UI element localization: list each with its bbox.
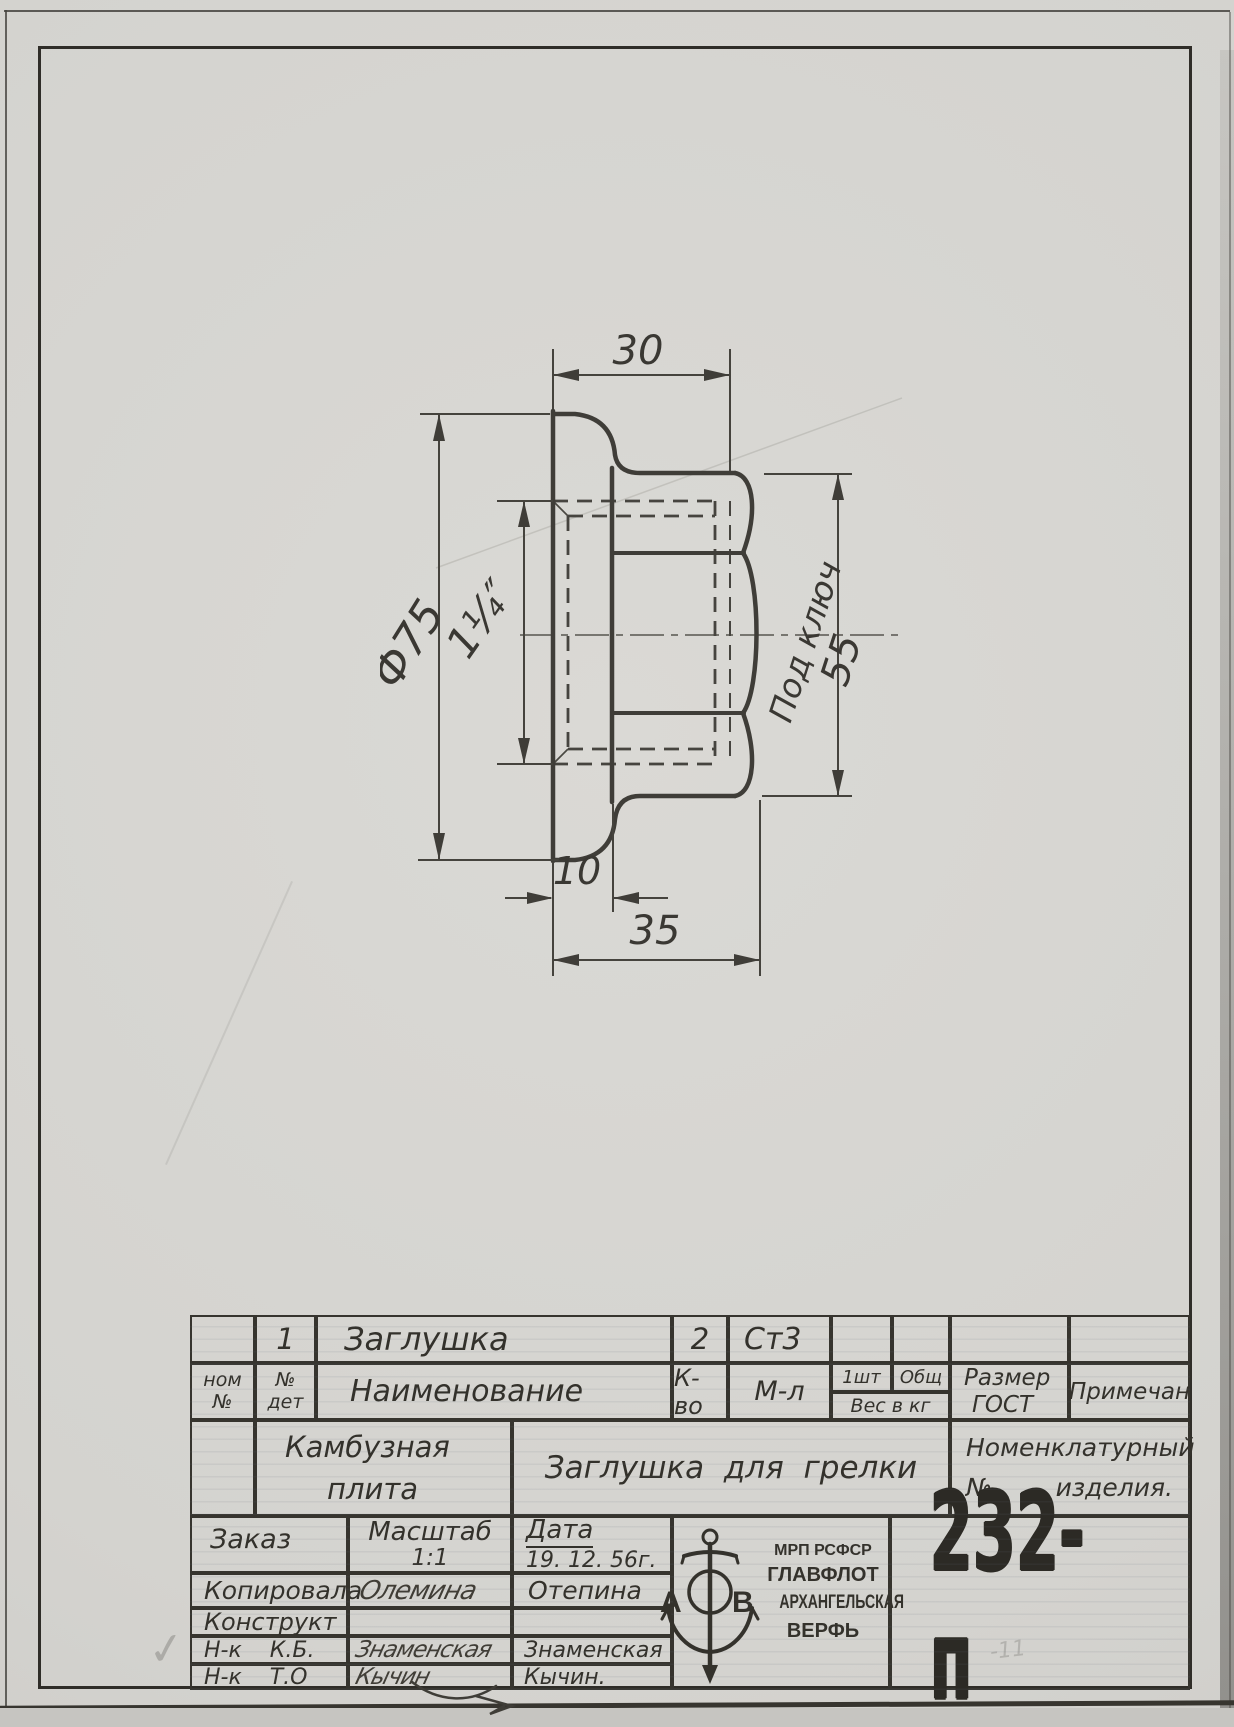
scale-cell: Масштаб 1:1 [348, 1516, 512, 1573]
chief-kb-signature-cell: Знаменская [348, 1636, 512, 1664]
copied-label-cell: Копировала [190, 1573, 348, 1608]
hex-corner-arc-top [735, 473, 752, 553]
stamp-org-line: МРП РСФСР [764, 1542, 882, 1560]
dim-label-flange-thickness: 10 [553, 849, 601, 893]
order-cell: Заказ [190, 1516, 348, 1573]
header-weight: Вес в кг [831, 1392, 950, 1420]
top-contour [553, 414, 735, 473]
header-det: № дет [255, 1363, 316, 1420]
scan-edge-top [4, 10, 1230, 12]
header-per-item: 1шт [831, 1363, 892, 1392]
header-size-gost: Размер ГОСТ [950, 1363, 1069, 1420]
item-det-no: 1 [255, 1315, 316, 1363]
table-cell-empty [190, 1315, 255, 1363]
table-cell-empty [190, 1420, 255, 1516]
signature-olemina: Олемина [356, 1576, 479, 1606]
pencil-note: -11 [989, 1636, 1028, 1665]
pencil-check-mark: ✓ [145, 1622, 189, 1678]
scan-edge-right [1220, 50, 1234, 1710]
dim-label-top-width: 30 [613, 330, 664, 374]
stamp-org-text: МРП РСФСР ГЛАВФЛОТ АРХАНГЕЛЬСКАЯ ВЕРФЬ [764, 1542, 882, 1643]
table-cell-empty [831, 1315, 892, 1363]
item-qty: 2 [672, 1315, 728, 1363]
item-material: Ст3 [728, 1315, 831, 1363]
item-name: Заглушка [316, 1315, 672, 1363]
part-title-cell: Заглушка для грелки [512, 1420, 950, 1516]
copied-signature-cell: Олемина [348, 1573, 512, 1608]
dim-label-total-length: 35 [630, 908, 681, 954]
assembly-cell: Камбузная плита [255, 1420, 512, 1516]
hex-middle-facet-arc [743, 553, 757, 713]
stamp-letter-a: А [660, 1586, 682, 1619]
hex-corner-arc-bottom [735, 713, 752, 796]
header-total: Общ [892, 1363, 950, 1392]
dim-label-thread: 1¼″ [436, 570, 524, 666]
scanned-drawing-sheet: 30 Ф75 1¼″ Под ключ 55 10 35 1 Заглушка … [0, 0, 1234, 1727]
chief-kb-label-cell: Н-к К.Б. [190, 1636, 348, 1664]
chief-kb-name-cell: Знаменская [512, 1636, 672, 1664]
stamp-org-line: ГЛАВФЛОТ [764, 1564, 882, 1587]
header-nom: ном № [190, 1363, 255, 1420]
drawing-number-cell: 232-п [890, 1516, 1190, 1690]
table-cell-empty [892, 1315, 950, 1363]
copied-name-cell: Отепина [512, 1573, 672, 1608]
date-cell: Дата 19. 12. 56г. [512, 1516, 672, 1573]
table-cell-empty [950, 1315, 1069, 1363]
header-material: М-л [728, 1363, 831, 1420]
chief-to-label-cell: Н-к Т.О [190, 1664, 348, 1690]
designer-label-cell: Конструкт [190, 1608, 348, 1636]
anchor-logo-icon: А В [658, 1524, 776, 1686]
table-cell-empty [1069, 1315, 1190, 1363]
header-qty: К-во [672, 1363, 728, 1420]
drawing-number: 232-п [930, 1468, 1114, 1725]
crease-line [436, 398, 902, 568]
part-outline [553, 411, 757, 861]
header-note: Примечан [1069, 1363, 1190, 1420]
signature-flourish [408, 1676, 528, 1720]
part-drawing: 30 Ф75 1¼″ Под ключ 55 10 35 [380, 330, 940, 990]
scan-edge-left [5, 10, 7, 1714]
designer-name-cell [512, 1608, 672, 1636]
designer-signature-cell [348, 1608, 512, 1636]
stamp-org-line: ВЕРФЬ [764, 1620, 882, 1643]
stamp-letter-b: В [732, 1586, 754, 1619]
header-name: Наименование [316, 1363, 672, 1420]
stamp-org-line: АРХАНГЕЛЬСКАЯ [779, 1592, 866, 1614]
chief-to-name-cell: Кычин. [512, 1664, 672, 1690]
scan-edge-right-line [1229, 12, 1231, 1710]
signature-znamenskaya: Знаменская [353, 1637, 494, 1663]
hidden-thread-lines [553, 501, 730, 764]
